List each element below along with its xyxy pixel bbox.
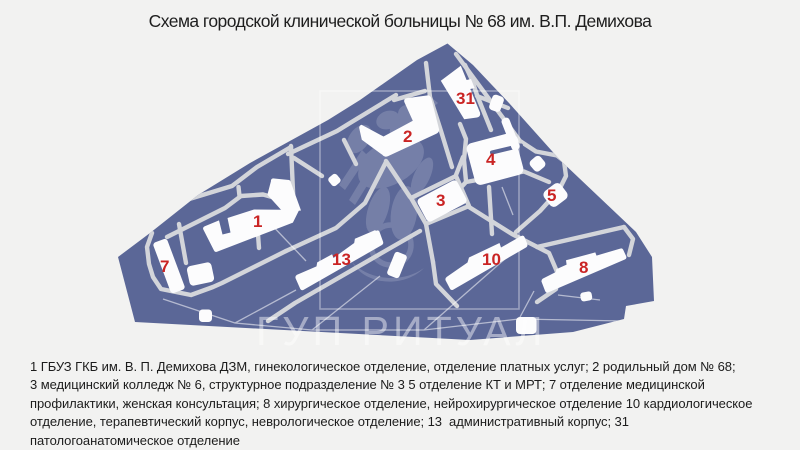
svg-text:5: 5 [547, 186, 556, 205]
svg-text:10: 10 [482, 250, 501, 269]
svg-text:8: 8 [579, 258, 588, 277]
svg-text:13: 13 [332, 250, 351, 269]
svg-text:2: 2 [403, 127, 412, 146]
svg-text:ГУП РИТУАЛ: ГУП РИТУАЛ [256, 308, 547, 354]
svg-text:3: 3 [436, 191, 445, 210]
svg-text:4: 4 [486, 150, 496, 169]
svg-text:7: 7 [160, 257, 169, 276]
svg-text:1: 1 [253, 212, 262, 231]
svg-text:31: 31 [456, 89, 475, 108]
